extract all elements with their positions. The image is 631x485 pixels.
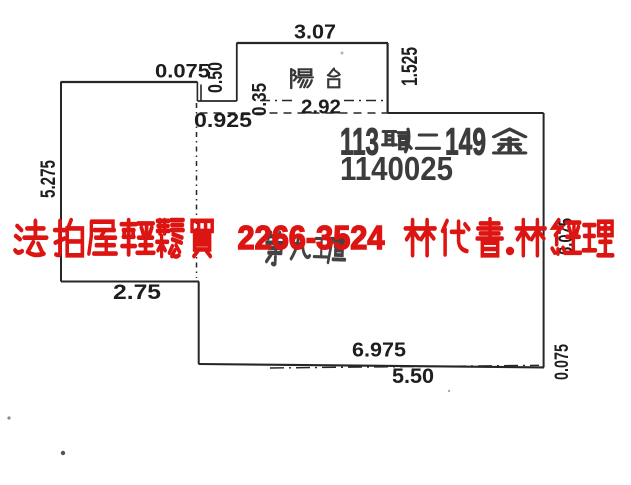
svg-text:0.50: 0.50	[205, 62, 227, 93]
svg-text:0.075: 0.075	[155, 62, 211, 83]
svg-text:2.75: 2.75	[113, 281, 161, 304]
svg-text:1140025: 1140025	[340, 150, 453, 187]
svg-text:5.275: 5.275	[37, 160, 60, 198]
svg-text:0.35: 0.35	[249, 83, 271, 116]
svg-text:0.075: 0.075	[552, 344, 573, 380]
svg-text:0.925: 0.925	[194, 110, 252, 132]
svg-text:5.50: 5.50	[392, 365, 434, 388]
svg-text:1.525: 1.525	[397, 47, 422, 86]
svg-text:3.07: 3.07	[294, 22, 336, 44]
svg-text:2266-3524: 2266-3524	[238, 219, 386, 256]
svg-text:6.975: 6.975	[352, 340, 406, 362]
svg-text:2.92: 2.92	[301, 97, 341, 119]
